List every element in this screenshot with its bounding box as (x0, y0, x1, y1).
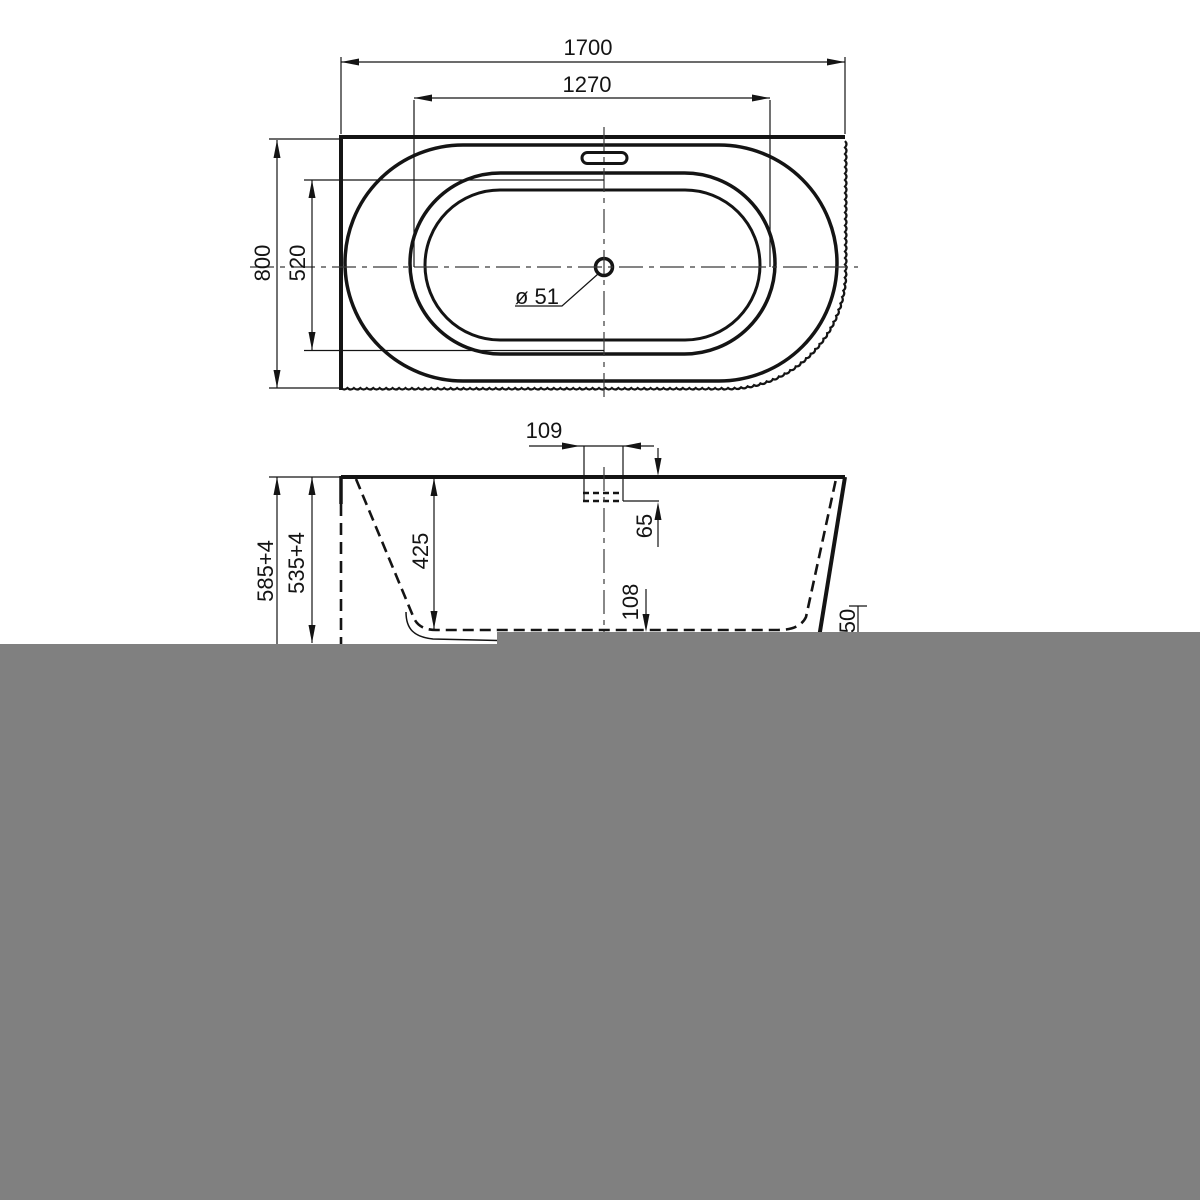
technical-drawing-page: 1700 1270 800 520 ø 51 (0, 0, 1200, 1200)
dim-65-label: 65 (632, 514, 657, 538)
dim-108-label: 108 (618, 584, 643, 621)
dim-535-label: 535+4 (284, 532, 309, 594)
dim-585-label: 585+4 (253, 540, 278, 602)
dim-1270-label: 1270 (563, 72, 612, 97)
dim-109-label: 109 (526, 418, 563, 443)
dim-50-label: 50 (835, 609, 860, 633)
dim-1700-label: 1700 (564, 35, 613, 60)
gray-overlay-left (0, 644, 497, 1200)
bathtub-drawing-svg: 1700 1270 800 520 ø 51 (0, 0, 1200, 1200)
gray-overlay-right (497, 632, 1200, 1200)
dim-425-label: 425 (408, 533, 433, 570)
dim-800-label: 800 (250, 245, 275, 282)
dim-520-label: 520 (285, 245, 310, 282)
dim-drain-label: ø 51 (515, 284, 559, 309)
